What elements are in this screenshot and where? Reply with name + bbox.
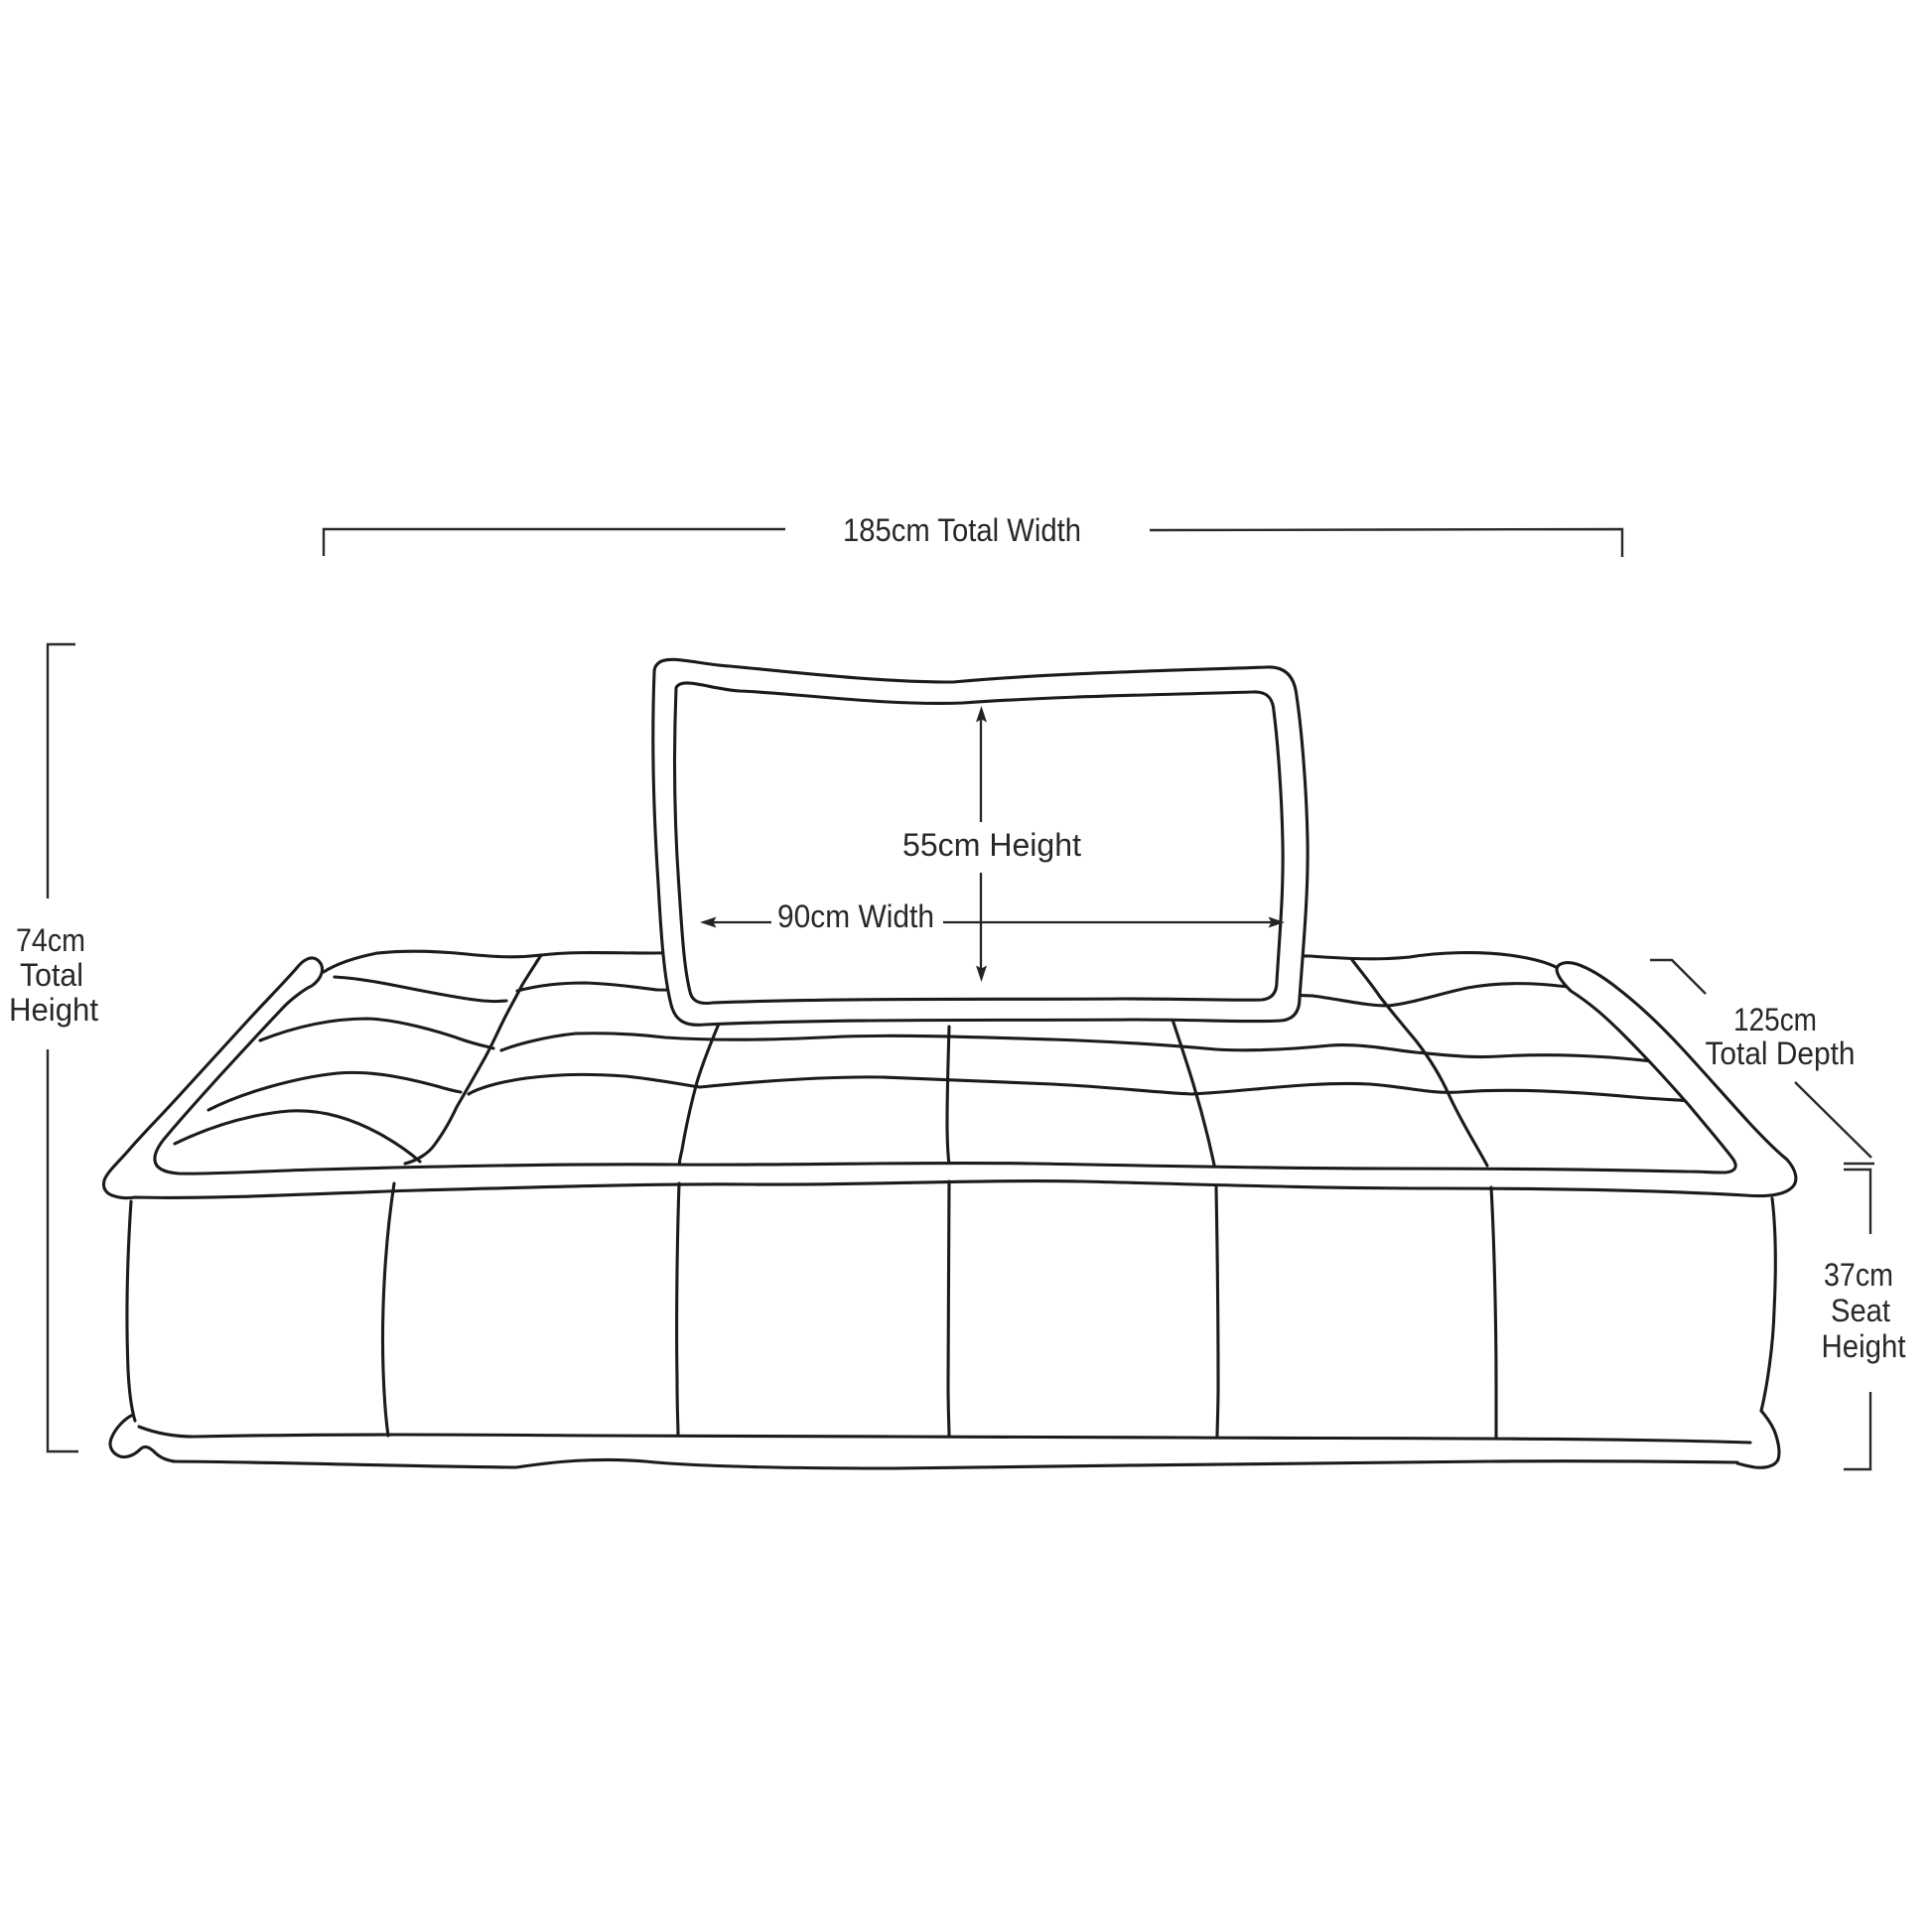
svg-text:185cm Total Width: 185cm Total Width	[843, 512, 1081, 548]
svg-text:Height: Height	[9, 992, 98, 1028]
svg-text:Total Depth: Total Depth	[1706, 1035, 1856, 1071]
svg-text:37cm: 37cm	[1824, 1257, 1893, 1293]
svg-text:Total: Total	[20, 957, 83, 993]
svg-text:Seat: Seat	[1831, 1293, 1890, 1328]
svg-text:125cm: 125cm	[1733, 1002, 1817, 1037]
svg-text:Height: Height	[1822, 1328, 1906, 1364]
svg-text:90cm Width: 90cm Width	[777, 898, 934, 934]
svg-text:74cm: 74cm	[16, 922, 85, 958]
svg-text:55cm Height: 55cm Height	[902, 827, 1081, 863]
